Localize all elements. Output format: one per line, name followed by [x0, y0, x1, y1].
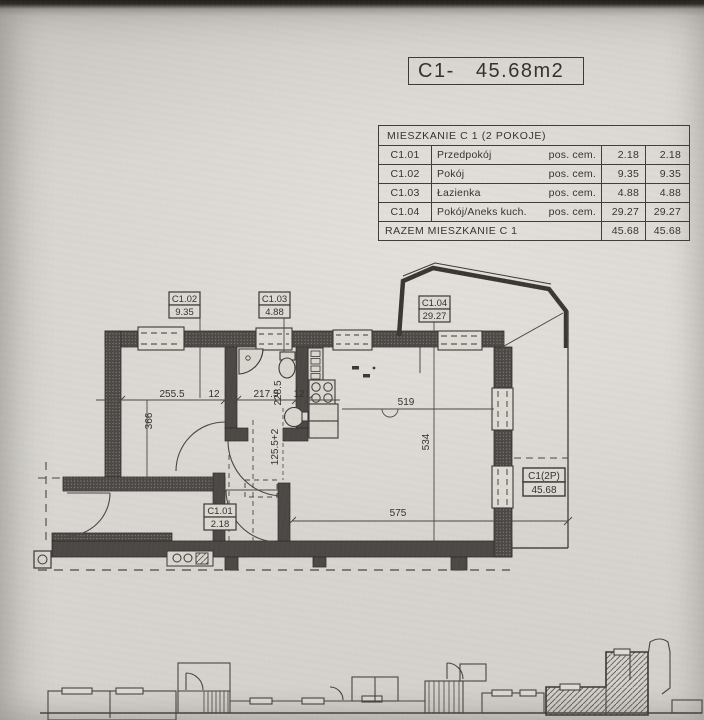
floor-plan-drawing: 255.5 12 217.5 12 228.5 366 519 534 125.…: [0, 0, 704, 720]
corridor-door-arc: [67, 493, 110, 536]
window: [492, 466, 513, 508]
entrance-niche: [245, 480, 277, 497]
wall-left: [105, 331, 121, 477]
kitchen-counter: [309, 404, 338, 421]
unit-label-code: C1(2P): [528, 471, 560, 482]
room-label-code: C1.03: [262, 294, 287, 305]
wall-bath-bottom-right: [283, 428, 308, 441]
room-label-code: C1.02: [172, 294, 197, 305]
wall-bath-bottom-left: [225, 428, 248, 441]
wall-bottom-cap: [52, 533, 172, 541]
dim-bottom-width: 575: [390, 508, 407, 519]
window: [492, 388, 513, 430]
room-door-arc: [176, 422, 225, 471]
room-label-code: C1.01: [207, 506, 232, 517]
room-label-area: 9.35: [175, 307, 194, 318]
wall-hall-right: [278, 483, 290, 541]
socket-mark: [373, 367, 376, 370]
wall-stub: [225, 557, 238, 570]
dim-room-height: 366: [144, 412, 155, 429]
kitchen-fixtures: [308, 347, 420, 438]
room-label-c104: C1.04 29.27: [419, 296, 450, 322]
window: [256, 328, 292, 350]
room-label-area: 2.18: [211, 519, 230, 530]
kitchen-counter: [309, 421, 338, 438]
window: [138, 327, 184, 350]
dim-living-height: 534: [421, 433, 432, 450]
dim-living-width: 519: [398, 397, 415, 408]
wall-room-bath: [225, 347, 237, 428]
socket-mark: [352, 366, 359, 370]
dim-hall-height: 125.5+2: [270, 428, 281, 465]
room-label-code: C1.04: [422, 298, 447, 309]
wall-bottom: [52, 541, 512, 557]
shower-tray: [239, 349, 263, 374]
wall-right: [494, 347, 512, 557]
dim-room-width: 255.5: [159, 389, 184, 400]
room-label-c102: C1.02 9.35: [169, 292, 200, 318]
shaft-box: [34, 551, 51, 568]
key-plan: [40, 639, 702, 720]
dim-wall: 12: [208, 389, 220, 400]
wall-room-bottom: [63, 477, 225, 491]
window: [438, 331, 482, 350]
washbasin: [285, 408, 304, 427]
window: [333, 330, 372, 350]
key-plan-bay: [648, 639, 670, 694]
room-label-c103: C1.03 4.88: [259, 292, 290, 318]
socket-mark: [363, 374, 370, 378]
room-label-c101: C1.01 2.18: [204, 504, 236, 530]
room-label-area: 29.27: [423, 311, 447, 322]
wall-stub: [313, 557, 326, 567]
room-label-area: 4.88: [265, 307, 284, 318]
unit-label-area: 45.68: [531, 485, 556, 496]
balcony-line: [512, 311, 568, 548]
wall-stub: [451, 557, 467, 570]
stairs: [204, 691, 228, 713]
unit-label: C1(2P) 45.68: [523, 468, 565, 496]
scanned-floor-plan-page: C1- 45.68m2 MIESZKANIE C 1 (2 POKOJE) C1…: [0, 0, 704, 720]
dimension-break: [382, 409, 398, 417]
dim-wall: 12: [293, 389, 305, 400]
dim-bath-height: 228.5: [273, 380, 284, 405]
washbasin-tap: [302, 412, 308, 421]
wc-toilet: [279, 358, 295, 378]
bay-leader-line: [497, 313, 563, 350]
stairs: [429, 681, 459, 713]
